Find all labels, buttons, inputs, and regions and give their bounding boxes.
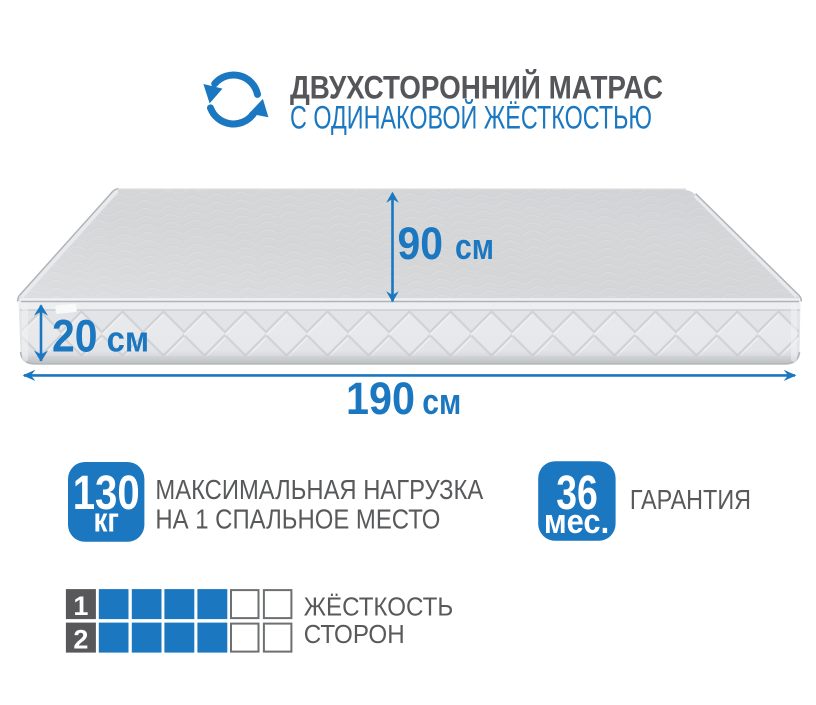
- svg-text:ГАРАНТИЯ: ГАРАНТИЯ: [630, 484, 751, 515]
- svg-text:СТОРОН: СТОРОН: [304, 619, 405, 649]
- svg-text:ЖЁСТКОСТЬ: ЖЁСТКОСТЬ: [304, 591, 454, 621]
- svg-text:190: 190: [346, 373, 415, 424]
- svg-text:20: 20: [52, 310, 98, 361]
- svg-text:2: 2: [73, 625, 88, 655]
- svg-text:см: см: [455, 226, 494, 267]
- svg-text:1: 1: [73, 591, 88, 621]
- svg-text:С ОДИНАКОВОЙ ЖЁСТКОСТЬЮ: С ОДИНАКОВОЙ ЖЁСТКОСТЬЮ: [290, 99, 652, 135]
- svg-text:кг: кг: [93, 501, 119, 539]
- svg-text:см: см: [422, 381, 461, 422]
- svg-text:90: 90: [398, 218, 444, 269]
- svg-text:НА 1 СПАЛЬНОЕ МЕСТО: НА 1 СПАЛЬНОЕ МЕСТО: [155, 504, 440, 535]
- svg-text:мес.: мес.: [544, 503, 609, 541]
- svg-text:МАКСИМАЛЬНАЯ НАГРУЗКА: МАКСИМАЛЬНАЯ НАГРУЗКА: [155, 474, 483, 505]
- svg-text:см: см: [107, 318, 150, 359]
